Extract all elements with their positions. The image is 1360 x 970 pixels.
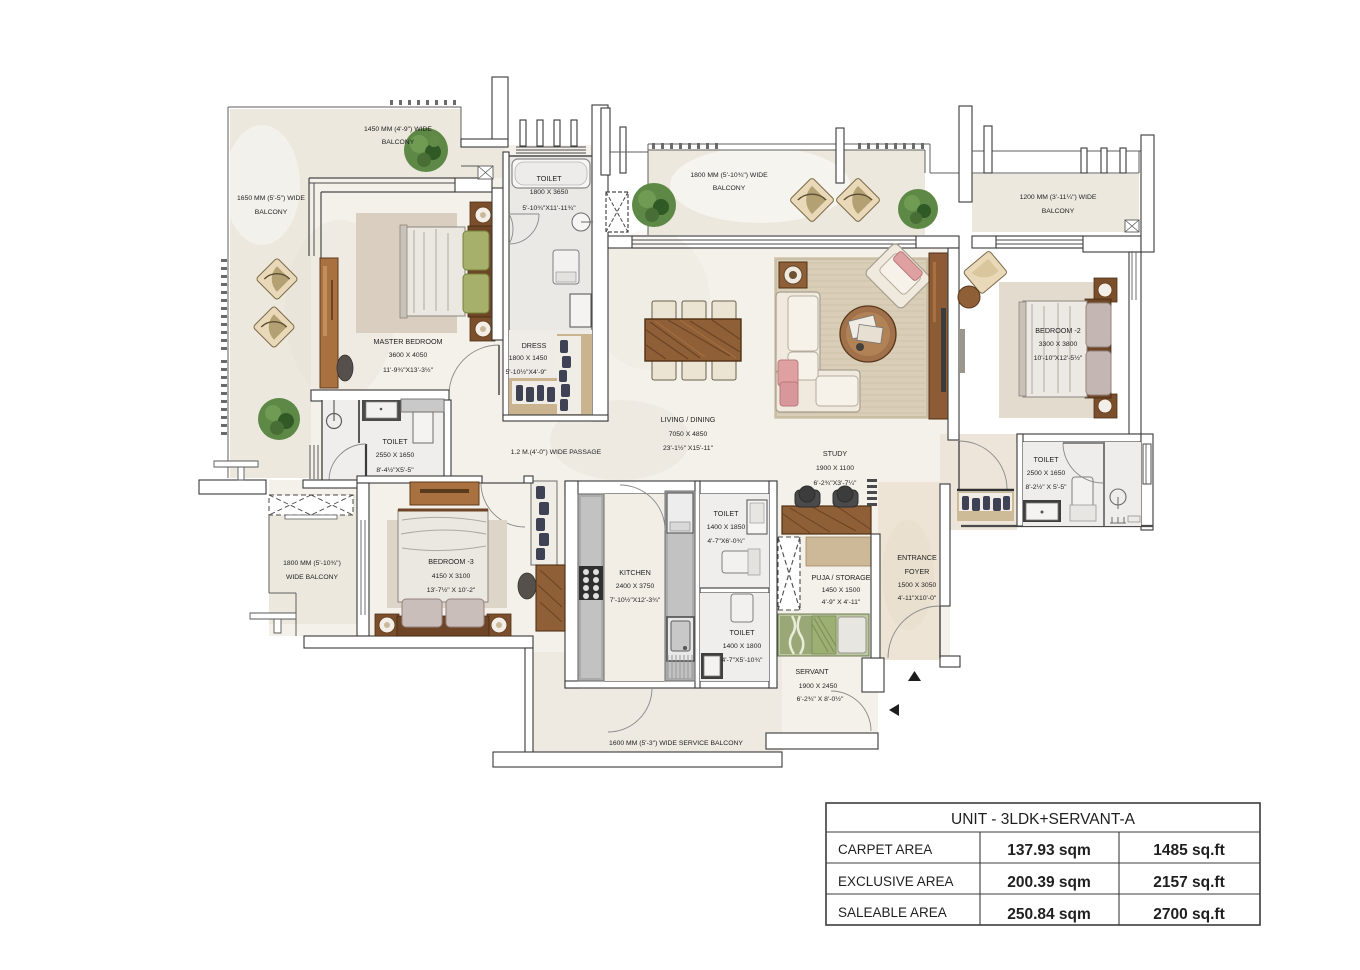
- svg-text:BALCONY: BALCONY: [713, 185, 746, 192]
- svg-text:2500 X 1650: 2500 X 1650: [1027, 470, 1066, 477]
- svg-text:4'-11"X10'-0": 4'-11"X10'-0": [898, 595, 937, 602]
- svg-text:SALEABLE AREA: SALEABLE AREA: [838, 905, 947, 920]
- svg-text:TOILET: TOILET: [382, 437, 408, 446]
- svg-text:WIDE BALCONY: WIDE BALCONY: [286, 574, 339, 581]
- svg-text:1900 X 2450: 1900 X 2450: [799, 683, 838, 690]
- svg-text:3600 X 4050: 3600 X 4050: [389, 352, 428, 359]
- svg-text:1500 X 3050: 1500 X 3050: [898, 582, 937, 589]
- svg-text:KITCHEN: KITCHEN: [619, 568, 651, 577]
- svg-text:TOILET: TOILET: [713, 509, 739, 518]
- svg-text:1800 X 3650: 1800 X 3650: [530, 189, 569, 196]
- svg-text:13'-7½" X 10'-2": 13'-7½" X 10'-2": [427, 586, 476, 594]
- svg-text:CARPET AREA: CARPET AREA: [838, 842, 932, 857]
- svg-text:4'-9" X 4'-11": 4'-9" X 4'-11": [822, 599, 861, 606]
- svg-text:11'-9¾"X13'-3½": 11'-9¾"X13'-3½": [383, 366, 434, 374]
- svg-text:1485 sq.ft: 1485 sq.ft: [1153, 842, 1225, 859]
- svg-text:1800 MM (5'-10¾") WIDE: 1800 MM (5'-10¾") WIDE: [690, 172, 768, 179]
- svg-text:3300 X 3800: 3300 X 3800: [1039, 341, 1078, 348]
- svg-text:1900 X 1100: 1900 X 1100: [816, 465, 854, 472]
- svg-text:1800 MM (5'-10¾"): 1800 MM (5'-10¾"): [283, 560, 341, 567]
- svg-text:8'-4½"X5'-5": 8'-4½"X5'-5": [376, 466, 414, 474]
- svg-text:5'-10¾"X11'-11¾": 5'-10¾"X11'-11¾": [522, 205, 576, 212]
- svg-text:137.93 sqm: 137.93 sqm: [1007, 842, 1091, 859]
- svg-text:1650 MM (5'-5") WIDE: 1650 MM (5'-5") WIDE: [237, 195, 305, 202]
- svg-text:TOILET: TOILET: [1033, 455, 1059, 464]
- svg-text:UNIT - 3LDK+SERVANT-A: UNIT - 3LDK+SERVANT-A: [951, 811, 1136, 828]
- svg-text:BALCONY: BALCONY: [1042, 208, 1075, 215]
- svg-text:2700 sq.ft: 2700 sq.ft: [1153, 906, 1225, 923]
- svg-text:250.84 sqm: 250.84 sqm: [1007, 906, 1091, 923]
- svg-text:1450 MM (4'-9") WIDE: 1450 MM (4'-9") WIDE: [364, 126, 432, 133]
- svg-text:1450 X 1500: 1450 X 1500: [822, 587, 861, 594]
- svg-text:8'-2½" X 5'-5": 8'-2½" X 5'-5": [1025, 483, 1067, 491]
- svg-text:1200 MM (3'-11¼") WIDE: 1200 MM (3'-11¼") WIDE: [1020, 194, 1097, 201]
- svg-text:10'-10"X12'-5½": 10'-10"X12'-5½": [1034, 354, 1083, 362]
- svg-text:DRESS: DRESS: [522, 341, 547, 350]
- svg-text:7050 X 4850: 7050 X 4850: [669, 431, 708, 438]
- svg-text:2400 X 3750: 2400 X 3750: [616, 583, 655, 590]
- svg-text:1.2 M.(4'-0") WIDE PASSAGE: 1.2 M.(4'-0") WIDE PASSAGE: [511, 449, 602, 456]
- svg-text:1400 X 1850: 1400 X 1850: [707, 524, 746, 531]
- svg-text:LIVING / DINING: LIVING / DINING: [661, 415, 716, 424]
- svg-text:TOILET: TOILET: [536, 174, 562, 183]
- svg-text:1600 MM (5'-3") WIDE SERVICE B: 1600 MM (5'-3") WIDE SERVICE BALCONY: [609, 740, 743, 747]
- svg-text:200.39 sqm: 200.39 sqm: [1007, 874, 1091, 891]
- svg-text:23'-1½" X15'-11": 23'-1½" X15'-11": [663, 444, 714, 452]
- svg-text:TOILET: TOILET: [729, 628, 755, 637]
- svg-text:1400 X 1800: 1400 X 1800: [723, 643, 762, 650]
- svg-text:2157 sq.ft: 2157 sq.ft: [1153, 874, 1225, 891]
- svg-text:ENTRANCE: ENTRANCE: [897, 553, 937, 562]
- svg-text:BALCONY: BALCONY: [255, 209, 288, 216]
- svg-text:BEDROOM -3: BEDROOM -3: [428, 557, 474, 566]
- svg-text:FOYER: FOYER: [905, 567, 930, 576]
- svg-text:6'-2¾"X3'-7¼": 6'-2¾"X3'-7¼": [814, 480, 858, 487]
- svg-text:4'-7"X6'-0¾": 4'-7"X6'-0¾": [707, 538, 745, 545]
- svg-text:1800 X 1450: 1800 X 1450: [509, 355, 548, 362]
- svg-text:BALCONY: BALCONY: [382, 139, 415, 146]
- svg-text:5'-10½"X4'-9": 5'-10½"X4'-9": [505, 368, 547, 376]
- svg-text:STUDY: STUDY: [823, 449, 848, 458]
- svg-text:PUJA / STORAGE: PUJA / STORAGE: [812, 573, 871, 582]
- svg-text:2550 X 1650: 2550 X 1650: [376, 452, 415, 459]
- svg-text:6'-2¾" X 8'-0½": 6'-2¾" X 8'-0½": [797, 695, 844, 703]
- svg-text:SERVANT: SERVANT: [795, 667, 829, 676]
- svg-text:4150 X 3100: 4150 X 3100: [432, 573, 471, 580]
- svg-text:EXCLUSIVE AREA: EXCLUSIVE AREA: [838, 874, 954, 889]
- svg-text:7'-10½"X12'-3¾": 7'-10½"X12'-3¾": [610, 596, 661, 604]
- svg-text:BEDROOM -2: BEDROOM -2: [1035, 326, 1081, 335]
- svg-text:MASTER BEDROOM: MASTER BEDROOM: [373, 337, 442, 346]
- svg-text:4'-7"X5'-10¾": 4'-7"X5'-10¾": [721, 657, 763, 664]
